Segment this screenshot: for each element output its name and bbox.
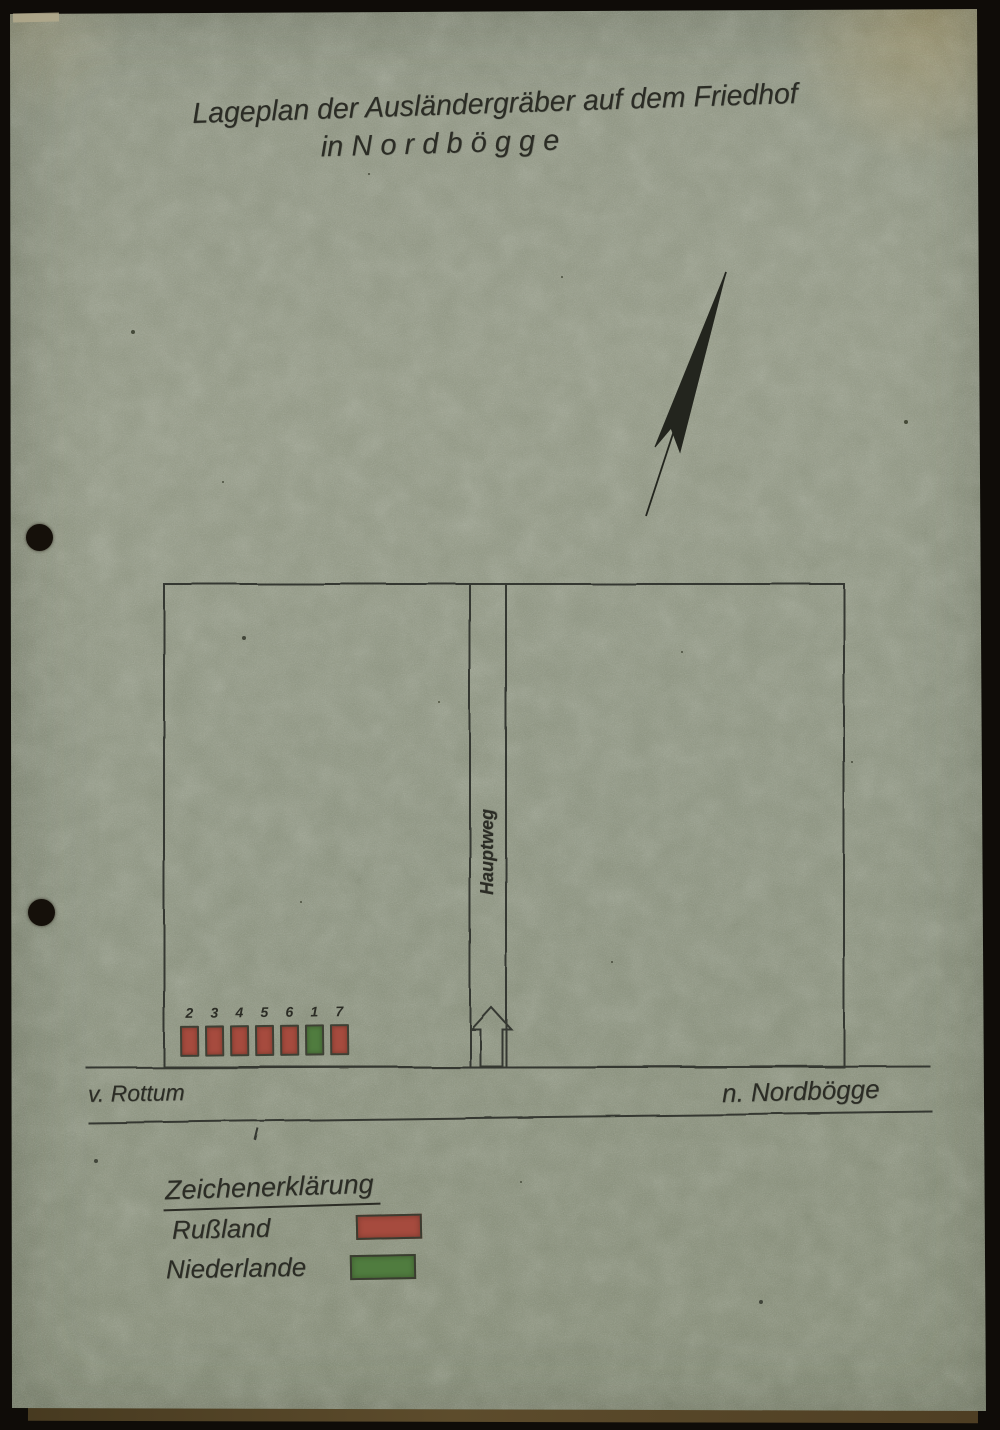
punch-hole-bottom <box>28 899 55 926</box>
legend-label: Rußland <box>172 1213 271 1246</box>
grave-box <box>205 1025 224 1056</box>
grave-box <box>180 1026 199 1057</box>
road-label-rottum: v. Rottum <box>88 1079 185 1108</box>
grave-marker: 3 <box>207 1004 223 1056</box>
grave-box <box>230 1025 249 1056</box>
grave-box <box>280 1025 299 1056</box>
punch-hole-top <box>26 524 53 551</box>
grave-number: 4 <box>235 1004 243 1021</box>
grave-number: 7 <box>335 1003 343 1020</box>
grave-box <box>305 1024 324 1055</box>
grave-box <box>255 1025 274 1056</box>
grave-marker: 7 <box>332 1003 348 1055</box>
document-scan: Lageplan der Ausländergräber auf dem Fri… <box>0 0 1000 1430</box>
legend-entry-russland: Rußland <box>172 1209 443 1249</box>
grave-marker: 1 <box>307 1003 323 1055</box>
paper-edge-tear <box>13 13 59 23</box>
paper-sheet <box>0 0 1000 1430</box>
grave-number: 1 <box>310 1003 318 1020</box>
grave-marker: 6 <box>282 1004 298 1056</box>
legend-swatch-red <box>356 1214 423 1240</box>
hauptweg-path-label: Hauptweg <box>477 792 499 912</box>
legend-label: Niederlande <box>166 1252 307 1285</box>
paper-specks <box>0 0 2 2</box>
grave-marker: 2 <box>182 1005 198 1057</box>
legend-swatch-green <box>350 1254 416 1280</box>
legend-title: Zeichenerklärung <box>162 1169 380 1212</box>
grave-number: 3 <box>210 1004 218 1021</box>
grave-marker: 4 <box>232 1004 248 1056</box>
grave-number: 6 <box>285 1004 293 1021</box>
grave-number: 5 <box>260 1004 268 1021</box>
paper-texture-coarse <box>0 0 1000 1430</box>
grave-box <box>330 1024 349 1055</box>
grave-number: 2 <box>185 1005 193 1022</box>
grave-marker-row: 2 3 4 5 6 1 7 <box>182 1003 348 1057</box>
road-label-nordboegge: n. Nordbögge <box>722 1074 880 1109</box>
grave-marker: 5 <box>257 1004 273 1056</box>
legend-entry-niederlande: Niederlande <box>166 1250 437 1289</box>
